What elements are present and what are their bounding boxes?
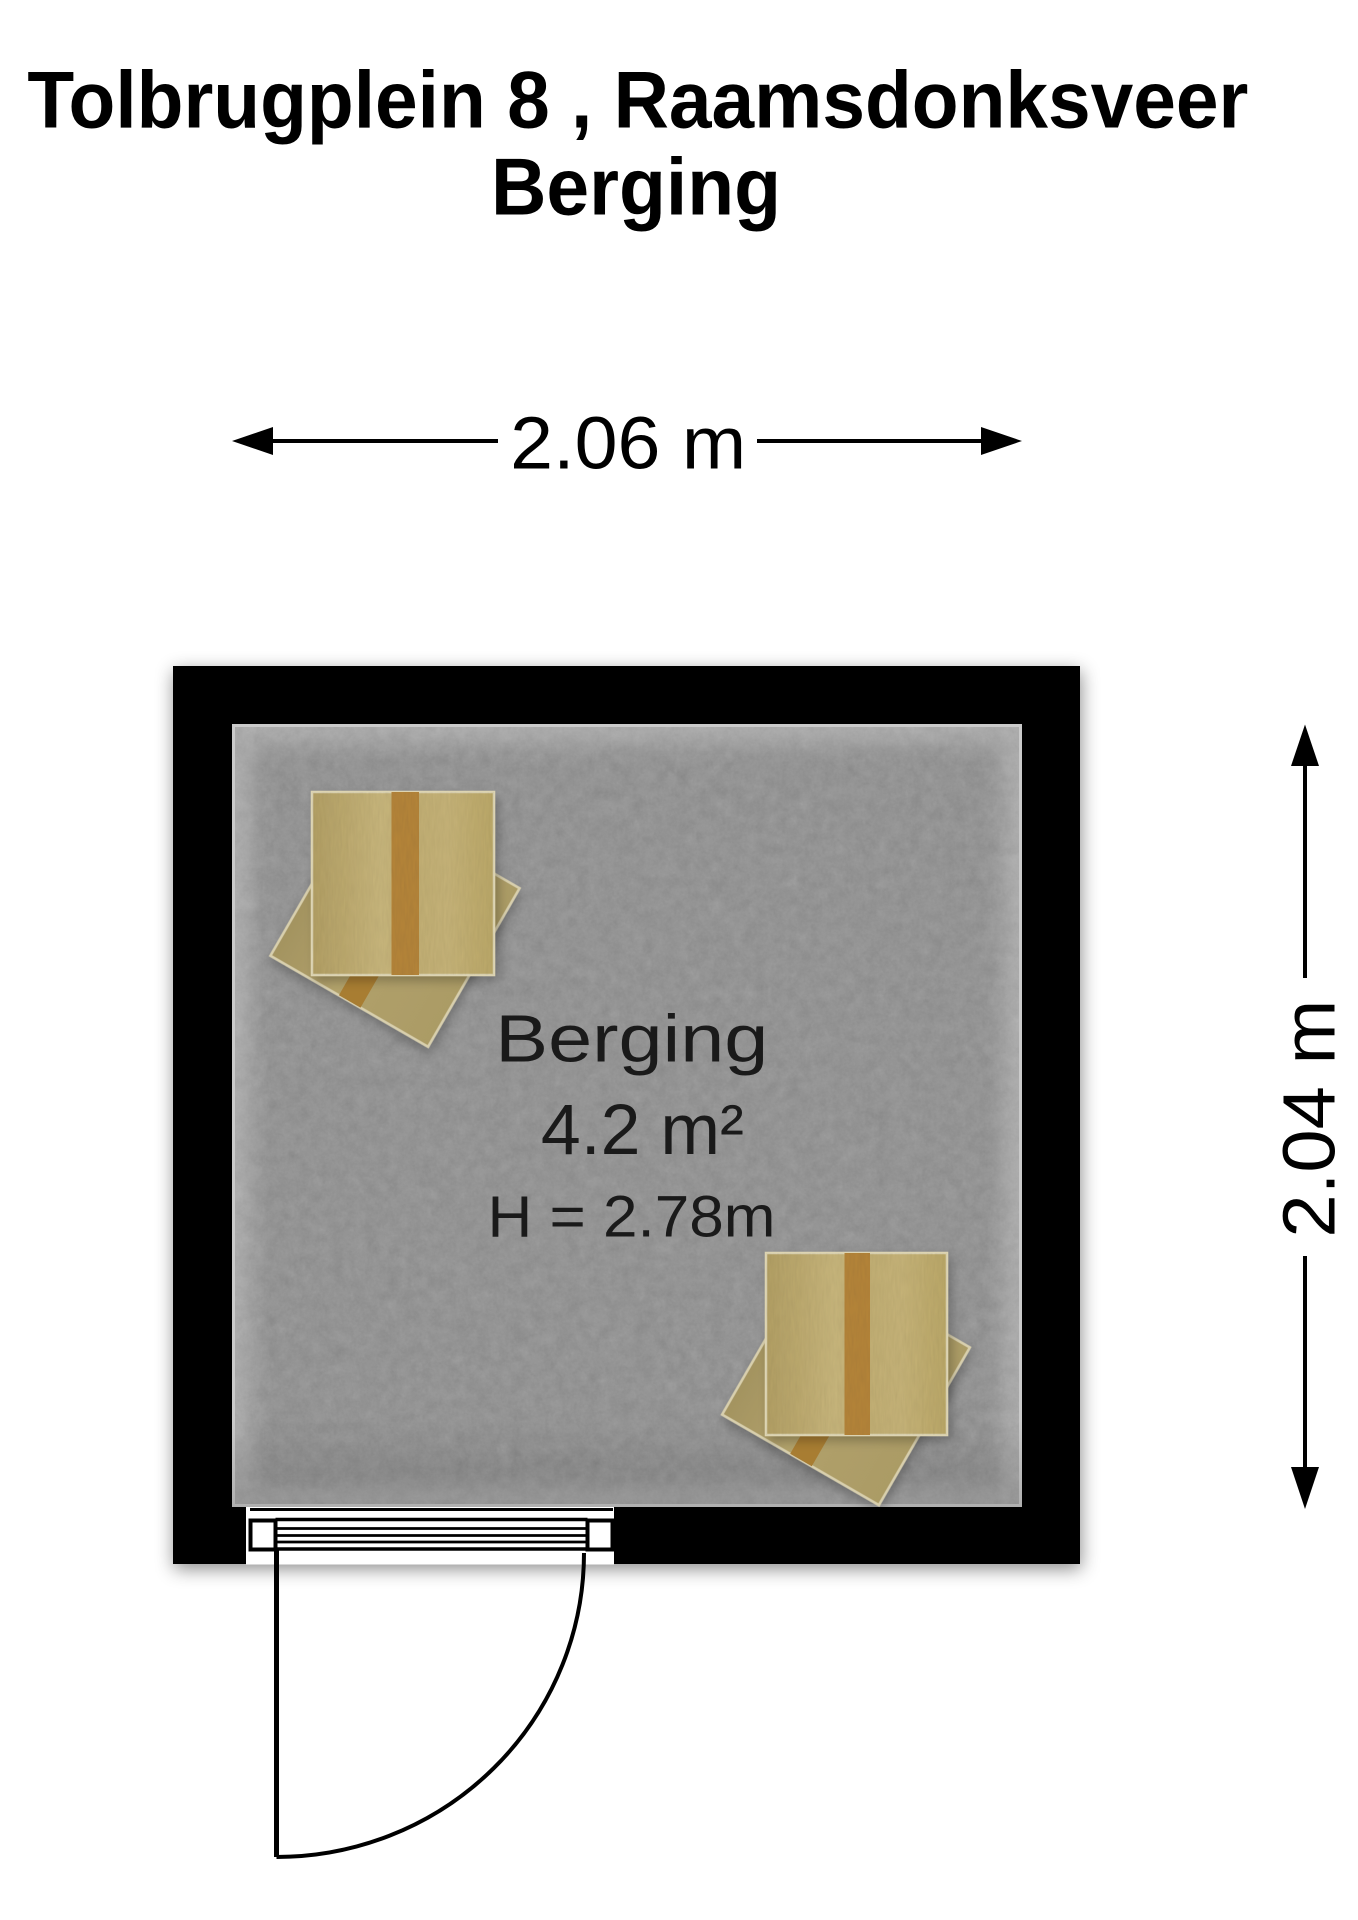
svg-text:Berging: Berging (491, 143, 781, 233)
svg-text:H = 2.78m: H = 2.78m (488, 1184, 776, 1249)
svg-text:4.2 m²: 4.2 m² (541, 1091, 744, 1170)
svg-text:2.04 m: 2.04 m (1268, 1000, 1351, 1238)
svg-text:2.06 m: 2.06 m (510, 402, 746, 485)
svg-text:Tolbrugplein 8 , Raamsdonksvee: Tolbrugplein 8 , Raamsdonksveer (27, 56, 1248, 146)
svg-text:Berging: Berging (495, 1002, 768, 1077)
